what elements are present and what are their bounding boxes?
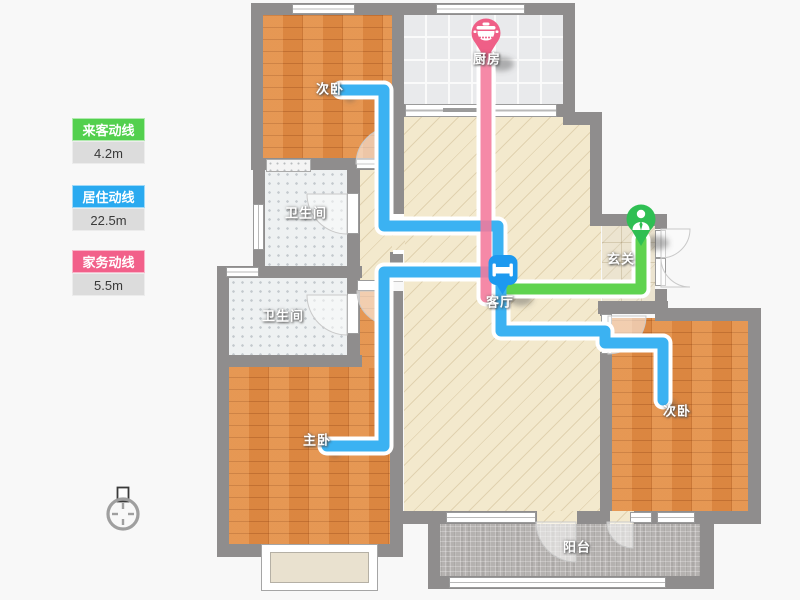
room-label-entry: 玄关 [607, 249, 635, 268]
floor-plan: 次卧 厨房 卫生间 卫生间 玄关 客厅 主卧 次卧 阳台 来客动线 4.2m 居… [0, 0, 800, 600]
room-label-balcony: 阳台 [563, 537, 591, 556]
room-label-bedroom-right: 次卧 [663, 401, 691, 420]
room-label-bathroom-lower: 卫生间 [262, 306, 304, 325]
room-label-living: 客厅 [486, 292, 514, 311]
room-label-bedroom-top-left: 次卧 [316, 79, 344, 98]
room-label-kitchen: 厨房 [473, 49, 501, 68]
room-label-bathroom-upper: 卫生间 [285, 203, 327, 222]
north-compass-icon [108, 488, 138, 530]
room-label-master-bedroom: 主卧 [303, 430, 331, 449]
plan-overlay [0, 0, 800, 600]
